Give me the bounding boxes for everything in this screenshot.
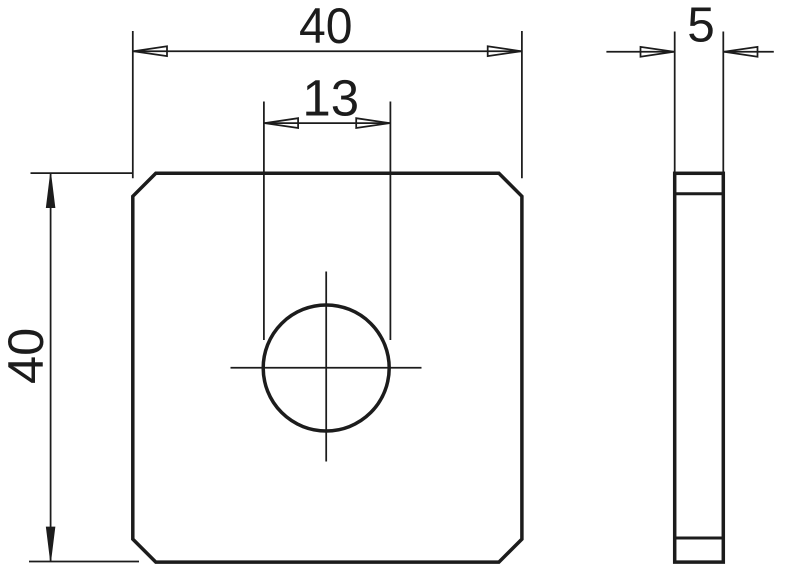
svg-text:40: 40 — [0, 328, 54, 384]
svg-text:13: 13 — [302, 70, 359, 127]
svg-text:5: 5 — [687, 0, 715, 53]
svg-text:40: 40 — [299, 0, 353, 54]
